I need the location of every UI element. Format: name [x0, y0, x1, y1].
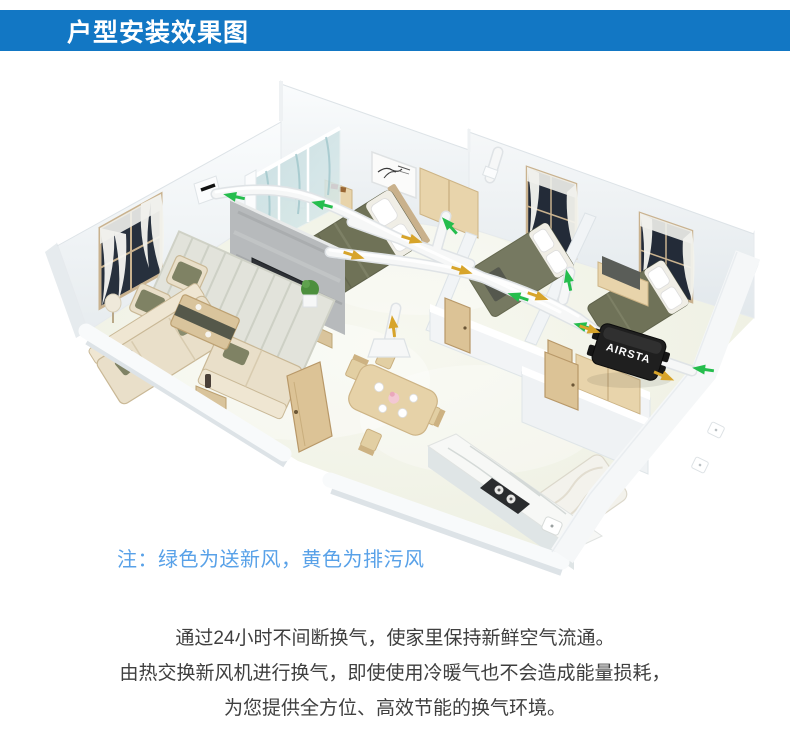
description-line: 为您提供全方位、高效节能的换气环境。	[15, 691, 775, 726]
hallway-door	[445, 298, 470, 353]
floorplan-illustration: AIRSTA	[0, 55, 790, 595]
description: 通过24小时不间断换气，使家里保持新鲜空气流通。 由热交换新风机进行换气，即使使…	[15, 621, 775, 726]
floorplan-figure: AIRSTA	[0, 55, 790, 595]
description-line: 由热交换新风机进行换气，即使使用冷暖气也不会造成能量损耗，	[15, 656, 775, 691]
page-title: 户型安装效果图	[67, 13, 249, 49]
section-header: 户型安装效果图	[0, 10, 790, 51]
legend-note: 注：绿色为送新风，黄色为排污风	[117, 543, 425, 572]
dining-exhaust-hood	[368, 339, 410, 357]
page: 户型安装效果图	[0, 0, 790, 756]
description-line: 通过24小时不间断换气，使家里保持新鲜空气流通。	[15, 621, 775, 656]
